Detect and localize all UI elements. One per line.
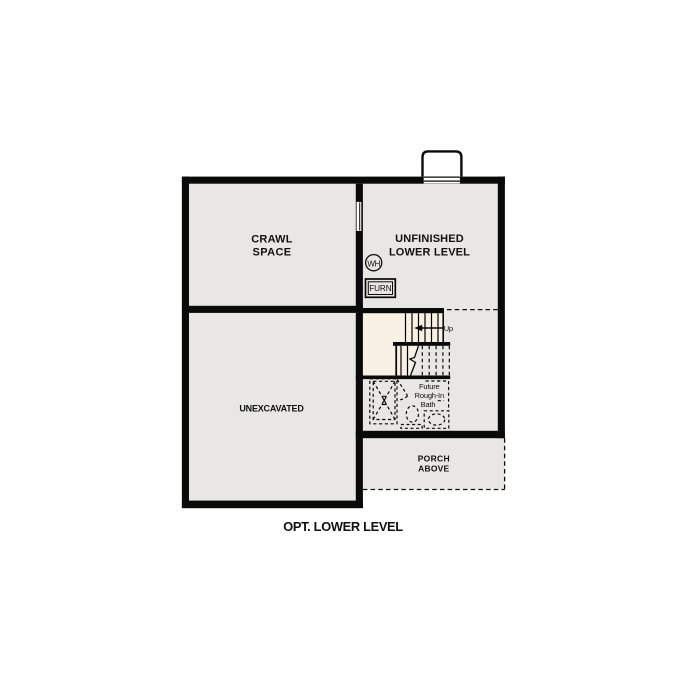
svg-text:FURN: FURN (369, 284, 392, 293)
svg-text:WH: WH (367, 259, 380, 268)
svg-text:Bath: Bath (421, 400, 436, 409)
svg-text:CRAWL: CRAWL (251, 234, 293, 246)
svg-text:PORCH: PORCH (418, 454, 450, 464)
svg-text:OPT. LOWER LEVEL: OPT. LOWER LEVEL (283, 519, 403, 534)
svg-text:Up: Up (444, 324, 453, 333)
svg-text:UNEXCAVATED: UNEXCAVATED (239, 404, 304, 414)
svg-text:Future: Future (419, 382, 440, 391)
svg-text:LOWER LEVEL: LOWER LEVEL (389, 247, 470, 259)
svg-text:UNFINISHED: UNFINISHED (395, 233, 464, 245)
svg-text:Rough-In: Rough-In (415, 391, 444, 400)
svg-text:SPACE: SPACE (252, 247, 291, 259)
svg-text:ABOVE: ABOVE (418, 464, 449, 474)
